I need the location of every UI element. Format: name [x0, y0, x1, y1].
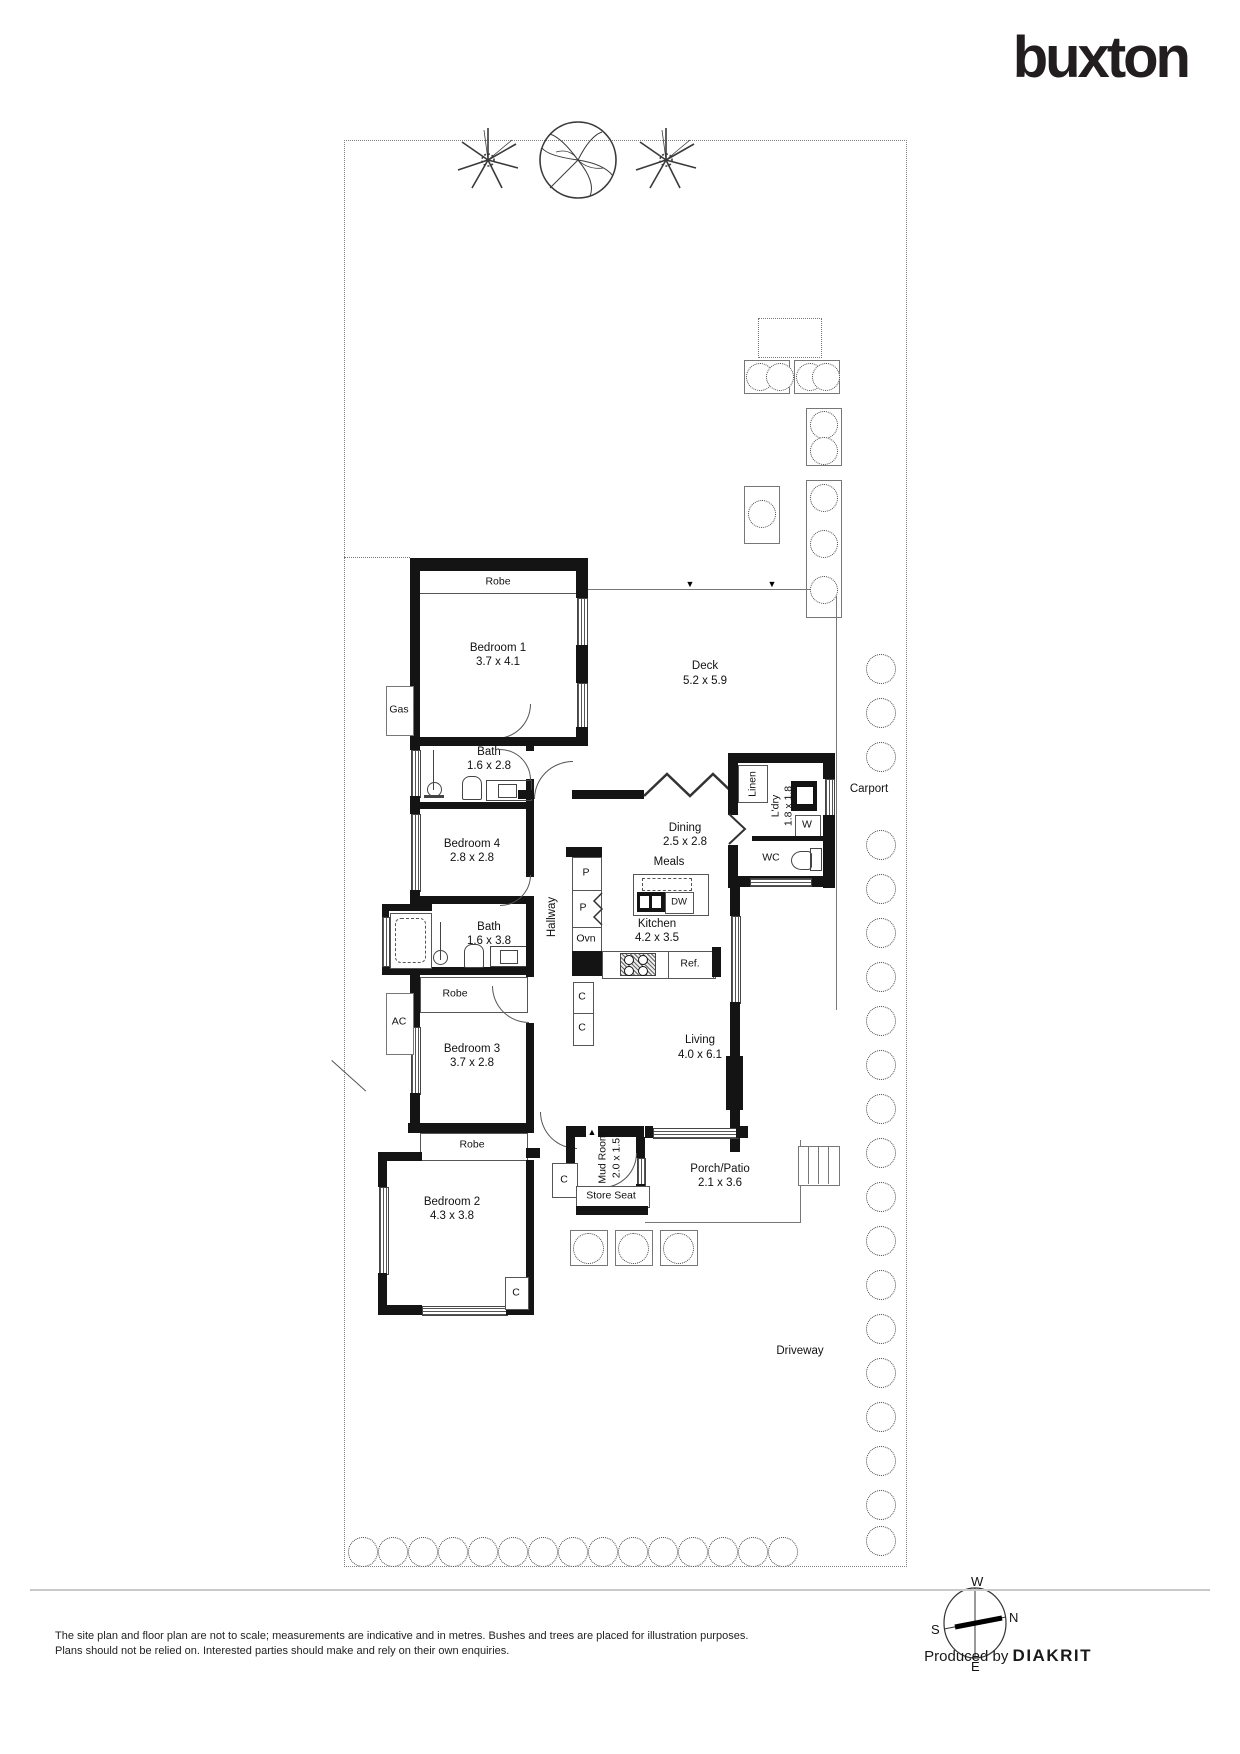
plant-icon — [648, 1537, 678, 1567]
plant-icon — [866, 1314, 896, 1344]
window — [825, 779, 835, 817]
wall — [730, 887, 740, 916]
cupboard-label: C — [578, 1022, 586, 1035]
bath1-name: Bath — [477, 746, 501, 760]
diakrit-logo: DIAKRIT — [1013, 1646, 1092, 1665]
wall — [572, 951, 602, 976]
sink-icon — [640, 896, 649, 908]
tree-icon — [540, 122, 616, 198]
kitchen-name: Kitchen — [638, 918, 676, 932]
dishwasher-label: DW — [671, 896, 687, 907]
wall — [752, 836, 823, 841]
steps — [798, 1146, 840, 1186]
deck-name: Deck — [692, 660, 718, 674]
dining-dims: 2.5 x 2.8 — [663, 836, 707, 850]
bedroom3-dims: 3.7 x 2.8 — [450, 1057, 494, 1071]
buxton-logo: buxton — [1013, 24, 1188, 91]
bedroom2-name: Bedroom 2 — [424, 1196, 480, 1210]
wall — [410, 737, 534, 746]
plant-icon — [348, 1537, 378, 1567]
wall — [526, 1023, 534, 1125]
cupboard-label: C — [512, 1287, 520, 1300]
bath1-dims: 1.6 x 2.8 — [467, 760, 511, 774]
wall — [572, 790, 644, 799]
entry-marker: ▼ — [768, 579, 777, 589]
wall — [518, 790, 532, 799]
plant-icon — [866, 874, 896, 904]
window — [750, 878, 812, 887]
plant-icon — [810, 530, 838, 558]
toilet-icon — [462, 776, 482, 800]
storeseat-label: Store Seat — [586, 1190, 636, 1203]
compass-w: W — [971, 1574, 984, 1589]
burner-icon — [624, 966, 634, 976]
dining-name: Dining — [669, 822, 702, 836]
plant-icon — [866, 918, 896, 948]
plant-icon — [812, 363, 840, 391]
wall — [378, 1161, 387, 1187]
plant-icon — [866, 1358, 896, 1388]
kitchen-dims: 4.2 x 3.5 — [635, 932, 679, 946]
meals-label: Meals — [654, 856, 685, 870]
wall — [728, 753, 835, 763]
plant-icon — [663, 1233, 694, 1264]
plant-icon — [866, 698, 896, 728]
plant-icon — [768, 1537, 798, 1567]
window — [411, 750, 421, 798]
bedroom1-dims: 3.7 x 4.1 — [476, 656, 520, 670]
bathtub-icon — [395, 918, 426, 963]
wall — [526, 746, 534, 751]
entry-marker: ▼ — [686, 579, 695, 589]
burner-icon — [638, 955, 648, 965]
wall — [378, 1152, 422, 1161]
pantry-label: P — [582, 867, 589, 880]
porch-dims: 2.1 x 3.6 — [698, 1177, 742, 1191]
wall — [526, 1148, 540, 1158]
floorplan-page: buxton ▼ ▼ — [0, 0, 1240, 1754]
plant-icon — [810, 411, 838, 439]
washer-label: W — [802, 819, 812, 832]
toilet-icon — [791, 851, 812, 870]
bedroom2-dims: 4.3 x 3.8 — [430, 1210, 474, 1224]
entry-marker: ▲ — [588, 1127, 597, 1137]
plant-icon — [866, 1402, 896, 1432]
shower-icon — [433, 950, 448, 965]
plant-icon — [866, 1270, 896, 1300]
plant-icon — [766, 363, 794, 391]
wc-label: WC — [762, 852, 780, 865]
mudroom-name: Mud Room — [597, 1132, 610, 1183]
wall — [712, 947, 721, 977]
plant-icon — [866, 1182, 896, 1212]
porch-name: Porch/Patio — [690, 1163, 749, 1177]
window — [653, 1128, 739, 1139]
window — [731, 916, 741, 1004]
wall — [566, 847, 602, 857]
plant-icon — [573, 1233, 604, 1264]
bedroom4-name: Bedroom 4 — [444, 838, 500, 852]
carport-label: Carport — [850, 783, 888, 797]
wall — [728, 845, 738, 888]
wall — [736, 1126, 748, 1138]
plant-icon — [866, 654, 896, 684]
bedroom1-name: Bedroom 1 — [470, 642, 526, 656]
wall — [645, 1126, 653, 1138]
wall — [410, 558, 588, 571]
hallway-label: Hallway — [546, 897, 560, 937]
plant-icon — [866, 1526, 896, 1556]
laundry-name: L'dry — [770, 795, 783, 817]
plant-icon — [678, 1537, 708, 1567]
plant-icon — [738, 1537, 768, 1567]
window — [422, 1306, 508, 1316]
robe-label: Robe — [459, 1139, 484, 1152]
plant-icon — [866, 1138, 896, 1168]
deck-fence-line — [584, 589, 836, 590]
wall — [526, 737, 588, 746]
produced-by-text: Produced by — [924, 1648, 1012, 1665]
robe-label: Robe — [485, 576, 510, 589]
sink-icon — [652, 896, 661, 908]
bifold-door — [644, 771, 736, 798]
oven-label: Ovn — [576, 933, 595, 946]
disclaimer-line1: The site plan and floor plan are not to … — [55, 1630, 748, 1642]
deck-dims: 5.2 x 5.9 — [683, 675, 727, 689]
step-line — [808, 1146, 809, 1184]
living-name: Living — [685, 1034, 715, 1048]
wall — [823, 753, 835, 779]
plant-icon — [618, 1537, 648, 1567]
cupboard-label: C — [560, 1174, 568, 1187]
wall — [730, 1002, 740, 1058]
footer-rule — [30, 1589, 1210, 1591]
carport-divider-line — [836, 589, 837, 1010]
wall — [382, 904, 432, 911]
plant-icon — [866, 1446, 896, 1476]
window — [379, 1187, 389, 1275]
gas-label: Gas — [389, 704, 408, 717]
wall — [526, 903, 534, 977]
shower-icon — [424, 795, 444, 798]
linen-label: Linen — [747, 771, 760, 797]
cupboard-label: C — [578, 991, 586, 1004]
plant-icon — [498, 1537, 528, 1567]
plant-icon — [708, 1537, 738, 1567]
plant-icon — [810, 484, 838, 512]
garden-trees — [450, 118, 710, 202]
wall — [728, 763, 738, 815]
pantry-door — [592, 892, 604, 926]
driveway-label: Driveway — [776, 1345, 823, 1359]
window — [577, 598, 588, 647]
plant-icon — [558, 1537, 588, 1567]
garden-structure — [758, 318, 822, 358]
pantry-label: P — [579, 902, 586, 915]
plant-icon — [378, 1537, 408, 1567]
bath2-name: Bath — [477, 921, 501, 935]
sliding-door — [726, 1056, 743, 1110]
window — [382, 917, 390, 967]
compass-n: N — [1009, 1610, 1018, 1625]
bedroom3-name: Bedroom 3 — [444, 1043, 500, 1057]
robe-label: Robe — [442, 988, 467, 1001]
plant-icon — [866, 1050, 896, 1080]
plant-icon — [748, 500, 776, 528]
plant-icon — [866, 1226, 896, 1256]
plant-icon — [810, 576, 838, 604]
step-line — [818, 1146, 819, 1184]
wall — [576, 645, 588, 683]
produced-by: Produced by DIAKRIT — [924, 1646, 1092, 1666]
plant-icon — [438, 1537, 468, 1567]
sink-icon — [498, 784, 517, 798]
plant-icon — [866, 1490, 896, 1520]
plant-icon — [528, 1537, 558, 1567]
fridge-label: Ref. — [680, 958, 699, 971]
disclaimer-line2: Plans should not be relied on. Intereste… — [55, 1645, 509, 1657]
wall — [378, 1305, 422, 1315]
bedroom4-dims: 2.8 x 2.8 — [450, 852, 494, 866]
plant-icon — [866, 742, 896, 772]
burner-icon — [638, 966, 648, 976]
bush-icon — [636, 128, 696, 188]
window — [411, 814, 421, 892]
plant-icon — [468, 1537, 498, 1567]
living-dims: 4.0 x 6.1 — [678, 1049, 722, 1063]
plant-icon — [866, 830, 896, 860]
compass-s: S — [931, 1622, 940, 1637]
wall — [408, 1123, 534, 1133]
window — [577, 683, 588, 733]
sink-icon — [500, 950, 518, 964]
plant-icon — [866, 1094, 896, 1124]
step-line — [828, 1146, 829, 1184]
plant-icon — [408, 1537, 438, 1567]
laundry-trough — [796, 786, 814, 805]
burner-icon — [624, 955, 634, 965]
folding-door — [726, 813, 748, 846]
wall — [410, 802, 534, 809]
wall — [576, 558, 588, 598]
plant-icon — [588, 1537, 618, 1567]
side-fence-line — [344, 557, 410, 558]
ac-label: AC — [392, 1016, 407, 1029]
wall — [576, 1206, 648, 1215]
wall — [636, 1137, 645, 1158]
mudroom-dims: 2.0 x 1.5 — [611, 1138, 624, 1178]
plant-icon — [866, 1006, 896, 1036]
plant-icon — [618, 1233, 649, 1264]
bush-icon — [458, 128, 518, 188]
laundry-dims: 1.8 x 1.8 — [783, 786, 796, 826]
plant-icon — [866, 962, 896, 992]
bath2-dims: 1.6 x 3.8 — [467, 935, 511, 949]
plant-icon — [810, 437, 838, 465]
island-overhang — [642, 878, 692, 891]
